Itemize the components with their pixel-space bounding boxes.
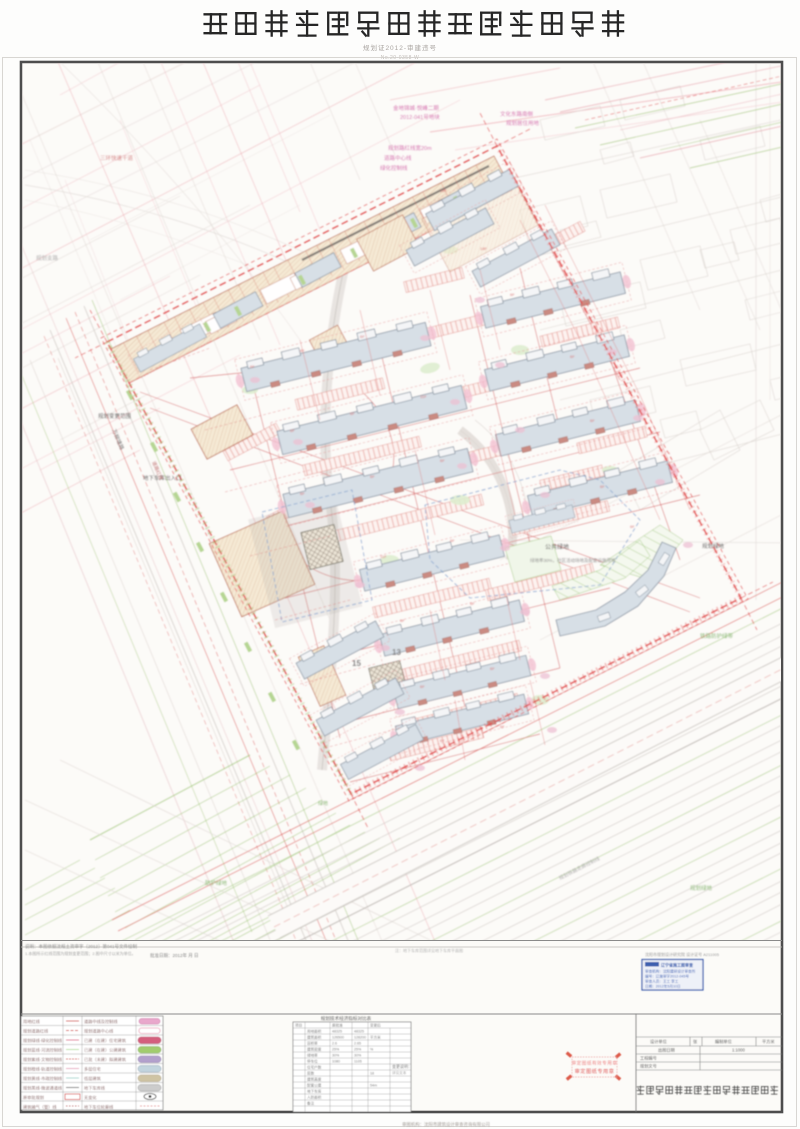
svg-text:住宅户数: 住宅户数 — [307, 1065, 322, 1070]
svg-text:平方米: 平方米 — [370, 1035, 381, 1040]
svg-text:规划黑线·微波通道线: 规划黑线·微波通道线 — [23, 1085, 63, 1092]
svg-text:变更后: 变更后 — [370, 1023, 381, 1028]
svg-text:审图机构：沈阳市建筑设计审查咨询有限公司: 审图机构：沈阳市建筑设计审查咨询有限公司 — [402, 1121, 490, 1128]
svg-text:2.65: 2.65 — [354, 1042, 361, 1046]
svg-text:规划证2012-审建违号: 规划证2012-审建违号 — [363, 43, 437, 52]
svg-text:审定图纸专用章: 审定图纸专用章 — [575, 1067, 615, 1075]
svg-text:126500: 126500 — [332, 1036, 344, 1040]
svg-text:批准日期：2012年 月 日: 批准日期：2012年 月 日 — [150, 952, 199, 959]
svg-text:出图日期: 出图日期 — [658, 1047, 675, 1054]
svg-text:注：地下车库范围详见地下车库平面图: 注：地下车库范围详见地下车库平面图 — [395, 947, 463, 953]
svg-text:人防面积: 人防面积 — [307, 1095, 322, 1100]
svg-text:1.本图所示红线范围为规划变更范围；2.图中尺寸以米为单位。: 1.本图所示红线范围为规划变更范围；2.图中尺寸以米为单位。 — [25, 950, 136, 956]
svg-text:沈阳市规划设计研究院 设计证号 A211005: 沈阳市规划设计研究院 设计证号 A211005 — [645, 951, 720, 957]
svg-text:48325: 48325 — [354, 1030, 364, 1034]
svg-text:30%: 30% — [332, 1054, 340, 1058]
svg-text:编号：辽施审字2012-045号: 编号：辽施审字2012-045号 — [645, 974, 689, 979]
svg-text:1080: 1080 — [332, 1060, 340, 1064]
svg-text:用地面积: 用地面积 — [307, 1029, 322, 1034]
svg-text:工程编号: 工程编号 — [640, 1055, 657, 1062]
svg-text:地下车库: 地下车库 — [307, 1089, 322, 1094]
svg-text:绿地率: 绿地率 — [307, 1053, 318, 1058]
svg-text:说明：本图依据沈规土资审字〔2012〕第041号文件绘制: 说明：本图依据沈规土资审字〔2012〕第041号文件绘制 — [25, 943, 138, 950]
svg-text:备注: 备注 — [307, 1101, 315, 1106]
svg-text:已批（未建）拟建建筑: 已批（未建）拟建建筑 — [84, 1056, 127, 1063]
svg-text:低层建筑: 低层建筑 — [84, 1075, 102, 1082]
svg-text:128200: 128200 — [354, 1036, 366, 1040]
svg-text:规划道路中心线: 规划道路中心线 — [84, 1028, 114, 1035]
svg-text:地下车位轮廓线: 地下车位轮廓线 — [84, 1104, 114, 1111]
svg-text:规划紫线·文物控制线: 规划紫线·文物控制线 — [23, 1056, 63, 1063]
svg-text:辽宁省施工图审查: 辽宁省施工图审查 — [661, 962, 693, 968]
svg-text:日期：2012年5月10日: 日期：2012年5月10日 — [645, 984, 681, 989]
svg-text:1:1000: 1:1000 — [732, 1048, 745, 1053]
svg-text:审查人员：王工 李工: 审查人员：王工 李工 — [645, 979, 679, 984]
svg-text:审查机构：沈阳建研设计审查所: 审查机构：沈阳建研设计审查所 — [645, 969, 696, 974]
svg-text:建筑面积: 建筑面积 — [307, 1035, 322, 1040]
svg-text:30%: 30% — [354, 1054, 362, 1058]
svg-text:25%: 25% — [354, 1048, 362, 1052]
svg-text:编制单位: 编制单位 — [715, 1038, 732, 1045]
svg-text:停车位: 停车位 — [307, 1059, 318, 1064]
svg-text:规划文号: 规划文号 — [640, 1063, 657, 1070]
svg-text:48325: 48325 — [332, 1030, 342, 1034]
svg-text:建筑密度: 建筑密度 — [307, 1047, 322, 1052]
svg-text:建筑高度: 建筑高度 — [307, 1077, 322, 1082]
svg-text:层数: 层数 — [307, 1071, 315, 1076]
svg-text:规划技术经济指标对比表: 规划技术经济指标对比表 — [321, 1015, 372, 1022]
svg-text:多层住宅: 多层住宅 — [84, 1066, 101, 1073]
svg-text:道路中线及控制线: 道路中线及控制线 — [84, 1018, 118, 1025]
svg-text:已建（在建）公建建筑: 已建（在建）公建建筑 — [84, 1047, 127, 1054]
svg-text:规划道路红线: 规划道路红线 — [23, 1028, 49, 1035]
svg-text:2.6: 2.6 — [332, 1042, 337, 1046]
svg-text:审定图纸有效专用章: 审定图纸有效专用章 — [572, 1060, 618, 1067]
svg-text:1105: 1105 — [354, 1060, 362, 1064]
svg-text:项目: 项目 — [295, 1023, 302, 1028]
svg-text:25%: 25% — [332, 1048, 340, 1052]
svg-text:原审批规划: 原审批规划 — [23, 1094, 44, 1101]
svg-text:规划蓝线·河流控制线: 规划蓝线·河流控制线 — [23, 1047, 63, 1054]
svg-text:平方米: 平方米 — [762, 1038, 775, 1045]
svg-text:No.20-0358-W: No.20-0358-W — [381, 55, 420, 61]
svg-text:容积率: 容积率 — [307, 1041, 318, 1046]
svg-text:规划橙线·轨道控制线: 规划橙线·轨道控制线 — [23, 1066, 63, 1073]
svg-text:用地红线: 用地红线 — [23, 1018, 41, 1025]
svg-text:详见文本: 详见文本 — [392, 1070, 407, 1075]
svg-text:18: 18 — [370, 1072, 374, 1076]
svg-text:配套公建: 配套公建 — [307, 1083, 322, 1088]
svg-text:已建（在建）住宅建筑: 已建（在建）住宅建筑 — [84, 1037, 127, 1044]
svg-text:变更说明：: 变更说明： — [392, 1063, 412, 1069]
svg-text:规划绿线·绿化控制线: 规划绿线·绿化控制线 — [23, 1037, 63, 1044]
svg-text:54m: 54m — [370, 1084, 377, 1088]
svg-text:规划黄线·市政控制线: 规划黄线·市政控制线 — [23, 1075, 63, 1082]
svg-text:原批准: 原批准 — [332, 1023, 343, 1028]
svg-text:无变化: 无变化 — [84, 1094, 97, 1101]
svg-text:设计单位: 设计单位 — [650, 1038, 667, 1045]
svg-text:建筑输气（管）线: 建筑输气（管）线 — [23, 1104, 57, 1111]
svg-text:地下车库线: 地下车库线 — [84, 1085, 106, 1092]
